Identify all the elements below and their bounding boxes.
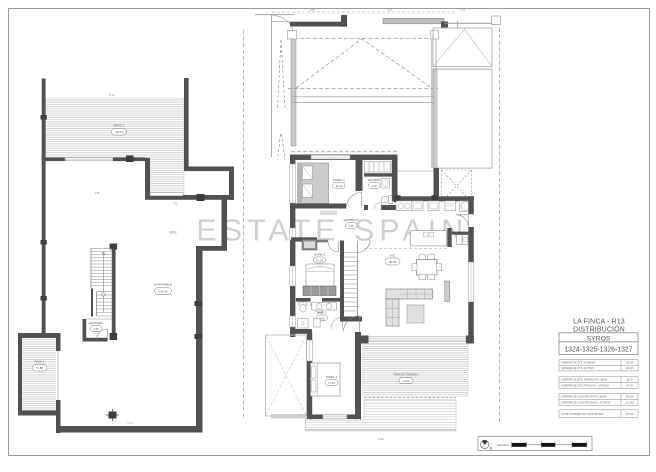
svg-text:24.00: 24.00 [403, 379, 410, 383]
svg-text:DORM. 1: DORM. 1 [326, 375, 338, 379]
svg-text:7.35: 7.35 [172, 202, 178, 206]
svg-text:10.25: 10.25 [316, 259, 323, 263]
svg-text:6.71: 6.71 [127, 421, 133, 425]
svg-text:4.80: 4.80 [371, 184, 377, 188]
svg-text:ESCALERA: ESCALERA [89, 321, 104, 325]
svg-text:N: N [490, 447, 493, 451]
svg-text:SUPERFICIE ÚTIL PATIOS PL. SÓT: SUPERFICIE ÚTIL PATIOS PL. SÓTANO [561, 382, 609, 387]
svg-text:ESCALA: ESCALA [498, 443, 509, 447]
svg-text:SUPERFICIE CONSTRUIDA PL. BAJA: SUPERFICIE CONSTRUIDA PL. BAJA [561, 395, 606, 399]
svg-text:135.20: 135.20 [626, 395, 634, 399]
svg-text:DISTRIBUCIÓN: DISTRIBUCIÓN [573, 324, 625, 333]
svg-text:17.40: 17.40 [328, 381, 335, 385]
svg-text:SYROS: SYROS [587, 335, 611, 342]
svg-text:48.95: 48.95 [389, 260, 396, 264]
svg-text:LA FINCA - R13: LA FINCA - R13 [573, 319, 625, 326]
svg-text:1324-1325-1326-1327: 1324-1325-1326-1327 [564, 347, 632, 354]
svg-text:7.45: 7.45 [348, 224, 354, 228]
svg-text:PORCHE TERRAZA: PORCHE TERRAZA [394, 373, 419, 377]
svg-text:36.21: 36.21 [115, 130, 123, 134]
svg-text:17.80: 17.80 [36, 366, 43, 370]
svg-text:171.80: 171.80 [626, 400, 634, 404]
svg-text:3.15: 3.15 [461, 9, 466, 12]
svg-text:DORM. 2: DORM. 2 [314, 253, 326, 257]
svg-text:S+C: S+C [390, 254, 396, 258]
svg-text:47.30: 47.30 [626, 383, 633, 387]
svg-text:ARMARIO: ARMARIO [368, 178, 381, 182]
svg-text:3.95: 3.95 [388, 9, 393, 12]
svg-text:SUPERFICIE ÚTIL TERRAZA PL. BA: SUPERFICIE ÚTIL TERRAZA PL. BAJA [561, 377, 608, 382]
svg-text:140.14: 140.14 [158, 289, 168, 293]
svg-text:307.06: 307.06 [626, 412, 634, 416]
svg-text:TOTAL SUPERFICIE CONSTRUIDA: TOTAL SUPERFICIE CONSTRUIDA [561, 412, 603, 416]
svg-text:PASO 1: PASO 1 [35, 360, 45, 364]
svg-text:4.95: 4.95 [94, 191, 100, 195]
svg-text:2.85: 2.85 [310, 9, 315, 12]
svg-text:DISPONIBLE: DISPONIBLE [154, 283, 172, 287]
svg-text:12.20: 12.20 [336, 184, 343, 188]
svg-text:PATIO 2: PATIO 2 [113, 124, 124, 128]
svg-text:SUPERFICIE CONSTRUIDA PL. SÓTA: SUPERFICIE CONSTRUIDA PL. SÓTANO [561, 399, 610, 404]
svg-text:36.70: 36.70 [626, 378, 633, 382]
svg-text:128.20: 128.20 [626, 361, 634, 365]
svg-text:4.60: 4.60 [93, 327, 99, 331]
svg-text:VESTIBULO: VESTIBULO [343, 218, 358, 222]
svg-text:8.48: 8.48 [378, 437, 384, 441]
svg-text:132.60: 132.60 [626, 366, 634, 370]
svg-text:DORM. 3: DORM. 3 [333, 178, 345, 182]
svg-text:SUPERFICIE ÚTIL VIVIENDA: SUPERFICIE ÚTIL VIVIENDA [561, 360, 596, 365]
svg-text:SUPERFICIE ÚTIL SÓTANO: SUPERFICIE ÚTIL SÓTANO [561, 365, 594, 370]
svg-text:6.70: 6.70 [109, 93, 115, 97]
